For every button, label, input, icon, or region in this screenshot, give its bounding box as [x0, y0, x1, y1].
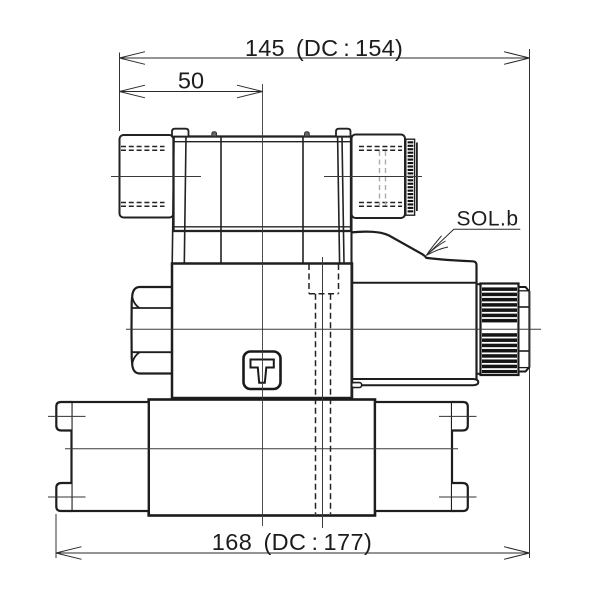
svg-text:168 (DC : 177): 168 (DC : 177): [212, 529, 372, 555]
svg-text:SOL.b: SOL.b: [457, 208, 519, 231]
svg-text:50: 50: [178, 68, 204, 94]
svg-text:145 (DC : 154): 145 (DC : 154): [245, 35, 403, 61]
